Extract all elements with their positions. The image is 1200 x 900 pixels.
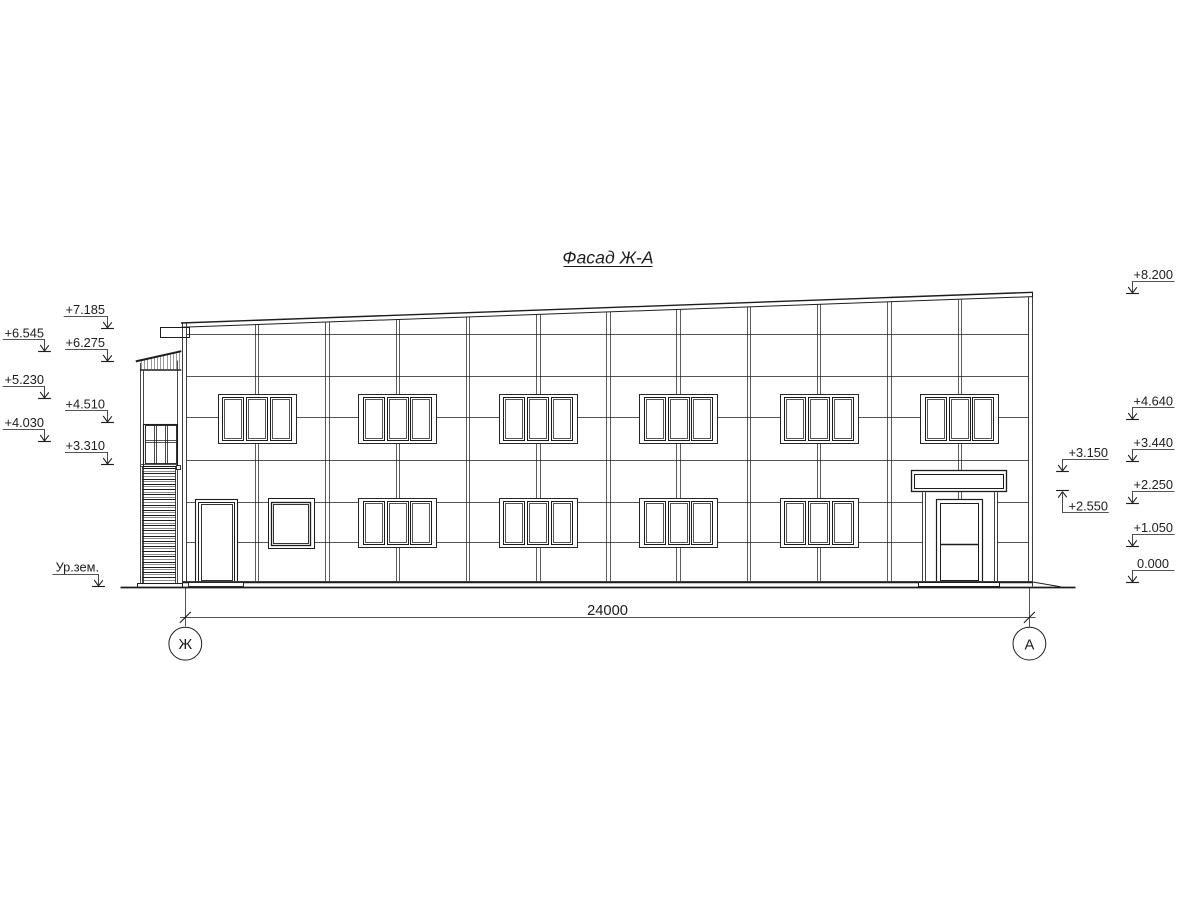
svg-text:24000: 24000	[587, 603, 628, 619]
svg-text:+3.440: +3.440	[1134, 435, 1174, 450]
svg-text:Фасад Ж-А: Фасад Ж-А	[562, 248, 653, 268]
svg-text:+5.230: +5.230	[5, 372, 45, 387]
svg-text:+3.150: +3.150	[1069, 445, 1109, 460]
svg-text:+4.030: +4.030	[5, 415, 45, 430]
svg-text:+2.250: +2.250	[1134, 477, 1174, 492]
svg-text:+3.310: +3.310	[66, 438, 106, 453]
svg-text:+7.185: +7.185	[66, 302, 106, 317]
svg-text:Ж: Ж	[178, 637, 192, 653]
svg-text:+4.510: +4.510	[66, 397, 106, 412]
svg-text:+2.550: +2.550	[1069, 498, 1109, 513]
svg-text:0.000: 0.000	[1137, 556, 1169, 571]
svg-text:А: А	[1024, 637, 1034, 653]
svg-text:+6.275: +6.275	[66, 335, 106, 350]
svg-text:+6.545: +6.545	[5, 325, 45, 340]
svg-text:Ур.зем.: Ур.зем.	[56, 560, 99, 575]
svg-text:+1.050: +1.050	[1134, 520, 1174, 535]
svg-text:+4.640: +4.640	[1134, 394, 1174, 409]
svg-text:+8.200: +8.200	[1134, 267, 1174, 282]
